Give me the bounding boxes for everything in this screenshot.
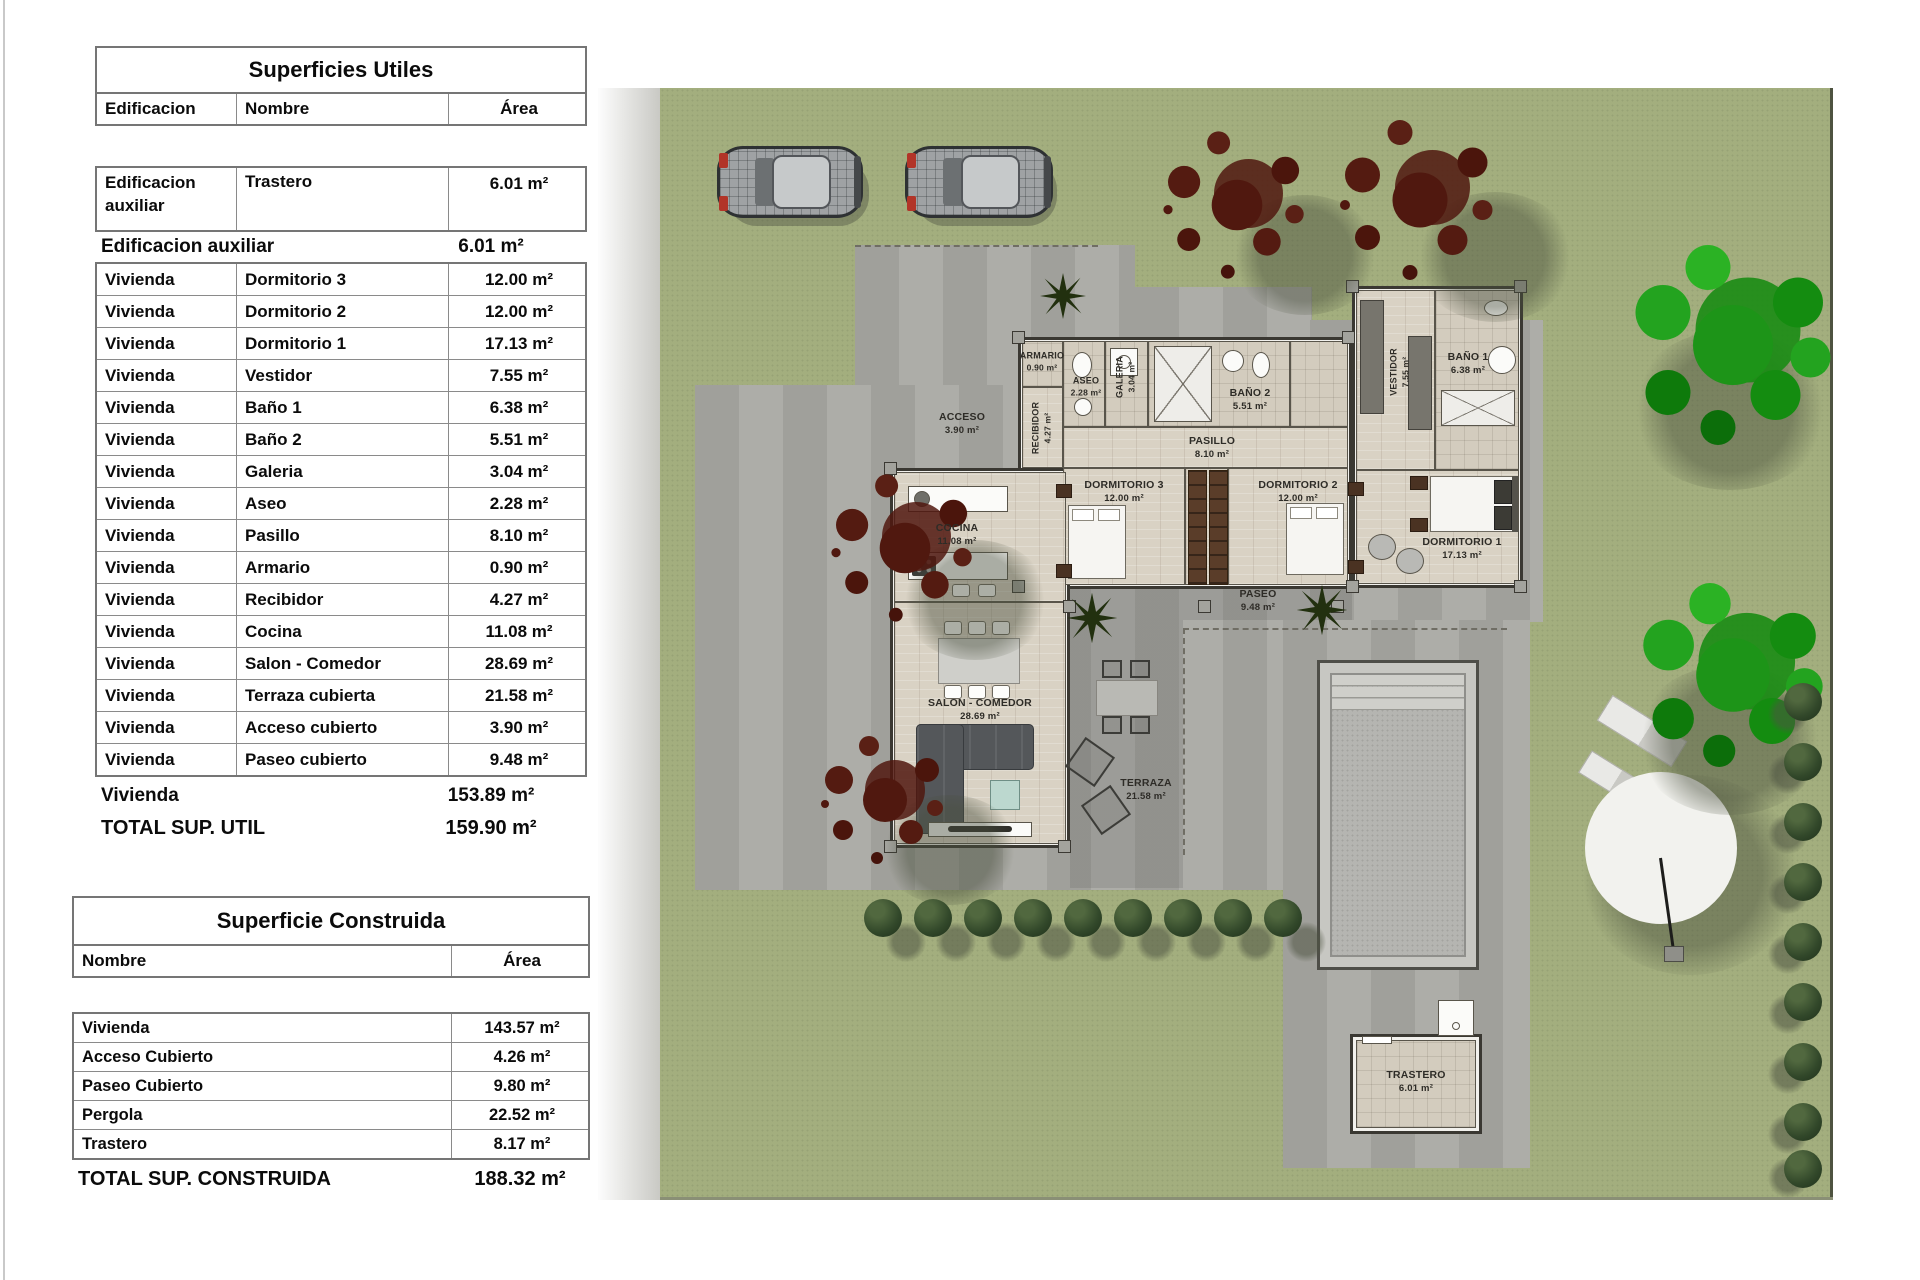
pergola-dashed-top (1183, 628, 1507, 630)
cell-building: Vivienda (97, 584, 237, 615)
table-row: Pergola 22.52 m² (74, 1101, 588, 1130)
headboard (1512, 476, 1518, 532)
cell-area: 22.52 m² (452, 1101, 588, 1129)
cell-building: Vivienda (97, 616, 237, 647)
label-bano2: BAÑO 25.51 m² (1230, 387, 1271, 413)
subtotal-vivienda-label: Vivienda (101, 785, 401, 807)
page-edge-line (3, 0, 5, 1280)
wall-post (1342, 331, 1355, 344)
room-area: 28.69 m² (928, 711, 1032, 723)
label-paseo: PASEO9.48 m² (1240, 588, 1277, 614)
cell-area: 2.28 m² (449, 488, 585, 519)
wall-post (1012, 331, 1025, 344)
room-name: ASEO (1071, 376, 1102, 388)
cell-name: Acceso cubierto (237, 712, 449, 743)
table-row: Vivienda Dormitorio 1 17.13 m² (97, 328, 585, 360)
room-area: 3.04 m² (1126, 356, 1137, 398)
bush (864, 899, 902, 937)
shower-bano1 (1441, 390, 1515, 426)
cell-area: 21.58 m² (449, 680, 585, 711)
car-front (1044, 156, 1051, 208)
total-util-row: TOTAL SUP. UTIL 159.90 m² (95, 811, 587, 846)
cell-area: 5.51 m² (449, 424, 585, 455)
cell-name: Armario (237, 552, 449, 583)
cell-building: Vivienda (97, 488, 237, 519)
cell-name: Paseo cubierto (237, 744, 449, 775)
room-area: 12.00 m² (1258, 493, 1337, 505)
pool-step (1332, 687, 1464, 698)
car-roof (961, 155, 1020, 210)
paseo-pillar (1198, 600, 1211, 613)
room-area: 9.48 m² (1240, 602, 1277, 614)
bush (1114, 899, 1152, 937)
car (717, 146, 863, 218)
col-header-nombre-2: Nombre (74, 946, 452, 976)
room-area: 6.38 m² (1448, 365, 1489, 377)
terrace-table (1096, 680, 1158, 716)
car (905, 146, 1053, 218)
bush (964, 899, 1002, 937)
room-name: DORMITORIO 1 (1422, 536, 1501, 550)
cell-name: Dormitorio 2 (237, 296, 449, 327)
cell-building: Vivienda (97, 360, 237, 391)
car-roof (772, 155, 830, 210)
side-table (990, 780, 1020, 810)
room-area: 11.08 m² (936, 536, 979, 548)
useful-table-title: Superficies Utiles (97, 48, 585, 94)
col-header-area-2: Área (452, 946, 588, 976)
cell-building: Edificacion auxiliar (97, 168, 237, 230)
room-name: TRASTERO (1386, 1069, 1445, 1083)
cell-area: 8.10 m² (449, 520, 585, 551)
red-tree (1212, 180, 1263, 231)
cell-building: Vivienda (97, 520, 237, 551)
label-terraza: TERRAZA21.58 m² (1120, 777, 1172, 803)
total-util-value: 159.90 m² (401, 817, 581, 840)
room-area: 12.00 m² (1084, 493, 1163, 505)
bush (1014, 899, 1052, 937)
room-name: DORMITORIO 2 (1258, 479, 1337, 493)
table-row: Vivienda Dormitorio 2 12.00 m² (97, 296, 585, 328)
label-cocina: COCINA11.08 m² (936, 522, 979, 548)
car-taillight (907, 196, 916, 211)
label-galeria: GALERIA3.04 m² (1115, 356, 1138, 398)
useful-rows-box: Vivienda Dormitorio 3 12.00 m² Vivienda … (95, 262, 587, 777)
room-name: VESTIDOR (1389, 348, 1401, 396)
room-area: 5.51 m² (1230, 401, 1271, 413)
terrace-chair (1130, 660, 1150, 678)
pergola-base (1664, 946, 1684, 962)
nightstand (1410, 476, 1428, 490)
table-row: Acceso Cubierto 4.26 m² (74, 1043, 588, 1072)
table-row: Vivienda Pasillo 8.10 m² (97, 520, 585, 552)
room-name: SALON - COMEDOR (928, 697, 1032, 711)
label-recibidor: RECIBIDOR4.27 m² (1031, 402, 1054, 454)
cell-name: Vivienda (74, 1014, 452, 1042)
scan-edge-gradient (598, 88, 660, 1200)
pillow (1072, 509, 1094, 521)
site-boundary-right (1830, 88, 1833, 1200)
cell-name: Paseo Cubierto (74, 1072, 452, 1100)
room-name: PASEO (1240, 588, 1277, 602)
table-row: Vivienda Baño 1 6.38 m² (97, 392, 585, 424)
car-taillight (907, 153, 916, 168)
closet-strip-right (1209, 470, 1228, 585)
cell-name: Trastero (237, 168, 449, 230)
room-area: 2.28 m² (1071, 387, 1102, 398)
useful-table-header-box: Superficies Utiles Edificacion Nombre Ár… (95, 46, 587, 126)
swimming-pool (1317, 660, 1479, 970)
paseo-pillar (1063, 600, 1076, 613)
col-header-nombre: Nombre (237, 94, 449, 124)
table-row: Vivienda Salon - Comedor 28.69 m² (97, 648, 585, 680)
bush (1784, 803, 1822, 841)
cell-area: 9.48 m² (449, 744, 585, 775)
table-row: Vivienda Galeria 3.04 m² (97, 456, 585, 488)
toilet-bano2 (1252, 352, 1270, 378)
cell-area: 6.38 m² (449, 392, 585, 423)
room-area: 17.13 m² (1422, 550, 1501, 562)
room-area: 0.90 m² (1020, 362, 1064, 373)
label-bano1: BAÑO 16.38 m² (1448, 351, 1489, 377)
red-tree (1393, 173, 1448, 228)
bush (1784, 683, 1822, 721)
red-tree (863, 778, 907, 822)
wardrobe (1408, 336, 1432, 430)
cell-building: Vivienda (97, 648, 237, 679)
cell-building: Vivienda (97, 424, 237, 455)
bush (1064, 899, 1102, 937)
cell-area: 11.08 m² (449, 616, 585, 647)
cell-building: Vivienda (97, 712, 237, 743)
bush (914, 899, 952, 937)
nightstand (1348, 482, 1364, 496)
nightstand (1348, 560, 1364, 574)
pool-step (1332, 675, 1464, 686)
room-name: ARMARIO (1020, 351, 1064, 363)
cell-name: Dormitorio 3 (237, 264, 449, 295)
wall-post (1514, 580, 1527, 593)
bush (1784, 743, 1822, 781)
cell-building: Vivienda (97, 296, 237, 327)
site-boundary-bottom (660, 1197, 1833, 1200)
cell-area: 8.17 m² (452, 1130, 588, 1158)
cell-building: Vivienda (97, 264, 237, 295)
table-row: Trastero 8.17 m² (74, 1130, 588, 1158)
armchair (1396, 548, 1424, 574)
cell-area: 12.00 m² (449, 264, 585, 295)
red-tree (880, 523, 931, 574)
cell-area: 4.27 m² (449, 584, 585, 615)
pool-step (1332, 699, 1464, 710)
sink-bano1 (1488, 346, 1516, 374)
sink-bano2 (1222, 350, 1244, 372)
table-row: Vivienda Aseo 2.28 m² (97, 488, 585, 520)
cell-area: 9.80 m² (452, 1072, 588, 1100)
subtotal-aux-row: Edificacion auxiliar 6.01 m² (95, 232, 587, 262)
outdoor-unit (1438, 1000, 1474, 1036)
room-name: PASILLO (1189, 435, 1235, 449)
label-salon-comedor: SALON - COMEDOR28.69 m² (928, 697, 1032, 723)
room-name: TERRAZA (1120, 777, 1172, 791)
built-table-header-box: Superficie Construida Nombre Área (72, 896, 590, 978)
label-dormitorio2: DORMITORIO 212.00 m² (1258, 479, 1337, 505)
total-util-label: TOTAL SUP. UTIL (101, 817, 401, 840)
car-taillight (719, 196, 728, 211)
toilet-aseo (1072, 352, 1092, 378)
room-name: RECIBIDOR (1031, 402, 1043, 454)
total-construida-value: 188.32 m² (456, 1168, 584, 1191)
table-row: Vivienda Cocina 11.08 m² (97, 616, 585, 648)
built-table-title: Superficie Construida (74, 898, 588, 946)
wardrobe (1360, 300, 1384, 414)
car-taillight (719, 153, 728, 168)
cell-area: 4.26 m² (452, 1043, 588, 1071)
subtotal-aux-label: Edificacion auxiliar (101, 236, 401, 258)
terrace-chair (1102, 660, 1122, 678)
bush (1264, 899, 1302, 937)
pillow-dark (1494, 506, 1512, 530)
room-name: ACCESO (939, 411, 985, 425)
cell-area: 28.69 m² (449, 648, 585, 679)
cell-name: Salon - Comedor (237, 648, 449, 679)
subtotal-vivienda-value: 153.89 m² (401, 785, 581, 807)
subtotal-vivienda-row: Vivienda 153.89 m² (95, 777, 587, 811)
room-area: 3.90 m² (939, 425, 985, 437)
cell-area: 3.04 m² (449, 456, 585, 487)
cell-area: 143.57 m² (452, 1014, 588, 1042)
cell-name: Recibidor (237, 584, 449, 615)
cell-area: 12.00 m² (449, 296, 585, 327)
terrace-chair (1130, 716, 1150, 734)
label-pasillo: PASILLO8.10 m² (1189, 435, 1235, 461)
cell-area: 3.90 m² (449, 712, 585, 743)
bush (1164, 899, 1202, 937)
label-aseo: ASEO2.28 m² (1071, 376, 1102, 399)
label-dormitorio1: DORMITORIO 117.13 m² (1422, 536, 1501, 562)
nightstand (1056, 484, 1072, 498)
cell-name: Baño 2 (237, 424, 449, 455)
cell-name: Terraza cubierta (237, 680, 449, 711)
cell-area: 7.55 m² (449, 360, 585, 391)
cell-building: Vivienda (97, 680, 237, 711)
cell-name: Trastero (74, 1130, 452, 1158)
col-header-edificacion: Edificacion (97, 94, 237, 124)
cell-area: 17.13 m² (449, 328, 585, 359)
room-area: 8.10 m² (1189, 449, 1235, 461)
wall-post (884, 462, 897, 475)
room-name: BAÑO 1 (1448, 351, 1489, 365)
kitchen-sink (914, 491, 930, 507)
cell-name: Cocina (237, 616, 449, 647)
table-row: Vivienda Terraza cubierta 21.58 m² (97, 680, 585, 712)
label-trastero: TRASTERO6.01 m² (1386, 1069, 1445, 1095)
trastero-door (1362, 1036, 1392, 1044)
shower-bano2 (1154, 346, 1212, 422)
pillow (1290, 507, 1312, 519)
useful-surfaces-table: Superficies Utiles Edificacion Nombre Ár… (95, 46, 587, 846)
built-surface-table: Superficie Construida Nombre Área Vivien… (72, 896, 590, 1197)
room-area: 6.01 m² (1386, 1083, 1445, 1095)
pillow-dark (1494, 480, 1512, 504)
cell-building: Vivienda (97, 456, 237, 487)
bush (1214, 899, 1252, 937)
room-area: 7.55 m² (1400, 348, 1411, 396)
green-tree (1693, 305, 1773, 385)
label-vestidor: VESTIDOR7.55 m² (1389, 348, 1412, 396)
cell-building: Vivienda (97, 392, 237, 423)
table-row: Vivienda Acceso cubierto 3.90 m² (97, 712, 585, 744)
table-row: Vivienda Armario 0.90 m² (97, 552, 585, 584)
cell-name: Baño 1 (237, 392, 449, 423)
bush (1784, 983, 1822, 1021)
bush (1784, 1103, 1822, 1141)
useful-first-row-box: Edificacion auxiliar Trastero 6.01 m² (95, 166, 587, 232)
cell-name: Aseo (237, 488, 449, 519)
table-row: Paseo Cubierto 9.80 m² (74, 1072, 588, 1101)
nightstand (1056, 564, 1072, 578)
outdoor-unit-knob (1452, 1022, 1460, 1030)
room-vestibule (1290, 341, 1348, 427)
label-acceso: ACCESO3.90 m² (939, 411, 985, 437)
cell-name: Pasillo (237, 520, 449, 551)
total-construida-row: TOTAL SUP. CONSTRUIDA 188.32 m² (72, 1160, 590, 1197)
pillow (1316, 507, 1338, 519)
room-name: GALERIA (1115, 356, 1127, 398)
label-dormitorio3: DORMITORIO 312.00 m² (1084, 479, 1163, 505)
room-area: 4.27 m² (1042, 402, 1053, 454)
subtotal-aux-value: 6.01 m² (401, 236, 581, 258)
cell-name: Vestidor (237, 360, 449, 391)
room-name: BAÑO 2 (1230, 387, 1271, 401)
pillow (1098, 509, 1120, 521)
cell-name: Acceso Cubierto (74, 1043, 452, 1071)
pergola-dashed-left (1183, 628, 1185, 855)
bush (1784, 923, 1822, 961)
room-name: COCINA (936, 522, 979, 536)
built-rows-box: Vivienda 143.57 m² Acceso Cubierto 4.26 … (72, 1012, 590, 1160)
wall-post (1346, 580, 1359, 593)
closet-strip-left (1188, 470, 1207, 585)
car-front (854, 156, 861, 208)
armchair (1368, 534, 1396, 560)
cell-building: Vivienda (97, 328, 237, 359)
cell-area: 0.90 m² (449, 552, 585, 583)
nightstand (1410, 518, 1428, 532)
table-row: Vivienda Vestidor 7.55 m² (97, 360, 585, 392)
green-tree (1696, 638, 1770, 712)
cell-building: Vivienda (97, 552, 237, 583)
room-area: 21.58 m² (1120, 791, 1172, 803)
sink-aseo (1074, 398, 1092, 416)
room-name: DORMITORIO 3 (1084, 479, 1163, 493)
cell-name: Dormitorio 1 (237, 328, 449, 359)
bush (1784, 863, 1822, 901)
floorplan-sheet: Superficies Utiles Edificacion Nombre Ár… (0, 0, 1920, 1280)
table-row: Vivienda Recibidor 4.27 m² (97, 584, 585, 616)
cell-name: Galeria (237, 456, 449, 487)
col-header-area: Área (449, 94, 585, 124)
driveway-entry-dashed-line (855, 245, 1098, 247)
cell-area: 6.01 m² (449, 168, 585, 230)
table-row: Vivienda Paseo cubierto 9.48 m² (97, 744, 585, 775)
wall-post (1058, 840, 1071, 853)
table-row: Vivienda Baño 2 5.51 m² (97, 424, 585, 456)
terrace-chair (1102, 716, 1122, 734)
table-row: Vivienda Dormitorio 3 12.00 m² (97, 264, 585, 296)
table-row: Vivienda 143.57 m² (74, 1014, 588, 1043)
bush (1784, 1150, 1822, 1188)
total-construida-label: TOTAL SUP. CONSTRUIDA (78, 1168, 456, 1191)
cell-building: Vivienda (97, 744, 237, 775)
cell-name: Pergola (74, 1101, 452, 1129)
label-armario: ARMARIO0.90 m² (1020, 351, 1064, 374)
bush (1784, 1043, 1822, 1081)
